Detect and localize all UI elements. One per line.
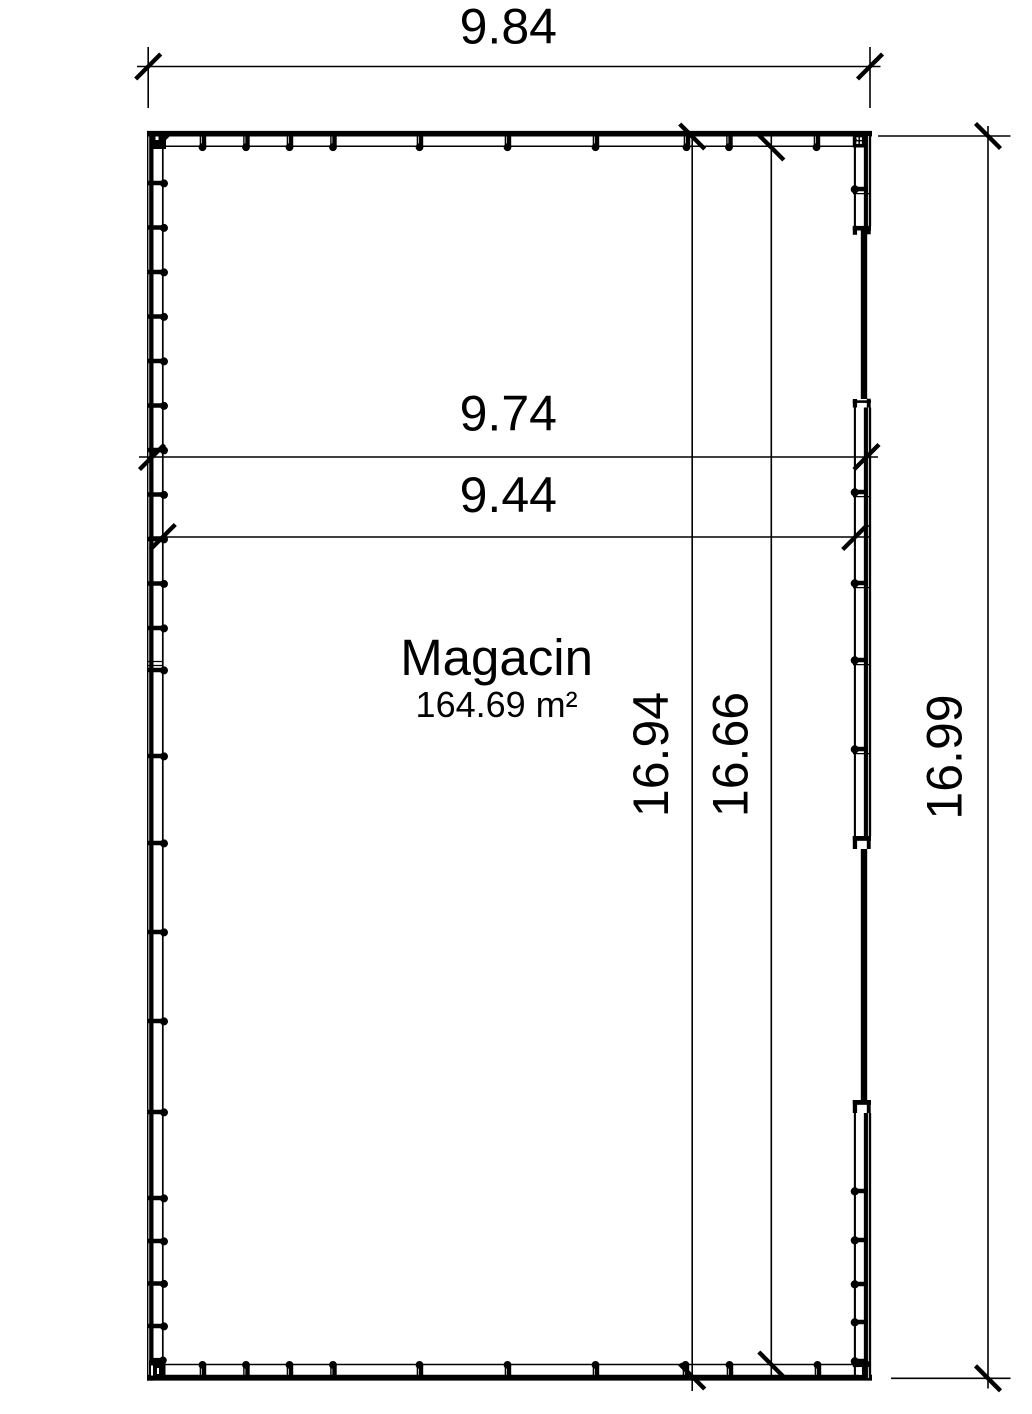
svg-text:9.74: 9.74 xyxy=(460,385,557,441)
svg-text:Magacin: Magacin xyxy=(400,629,593,686)
svg-text:9.44: 9.44 xyxy=(460,467,557,523)
svg-text:9.84: 9.84 xyxy=(460,0,557,54)
svg-text:164.69 m²: 164.69 m² xyxy=(416,684,578,725)
svg-text:16.66: 16.66 xyxy=(703,692,759,817)
svg-text:16.94: 16.94 xyxy=(623,692,679,817)
svg-text:16.99: 16.99 xyxy=(917,694,973,819)
